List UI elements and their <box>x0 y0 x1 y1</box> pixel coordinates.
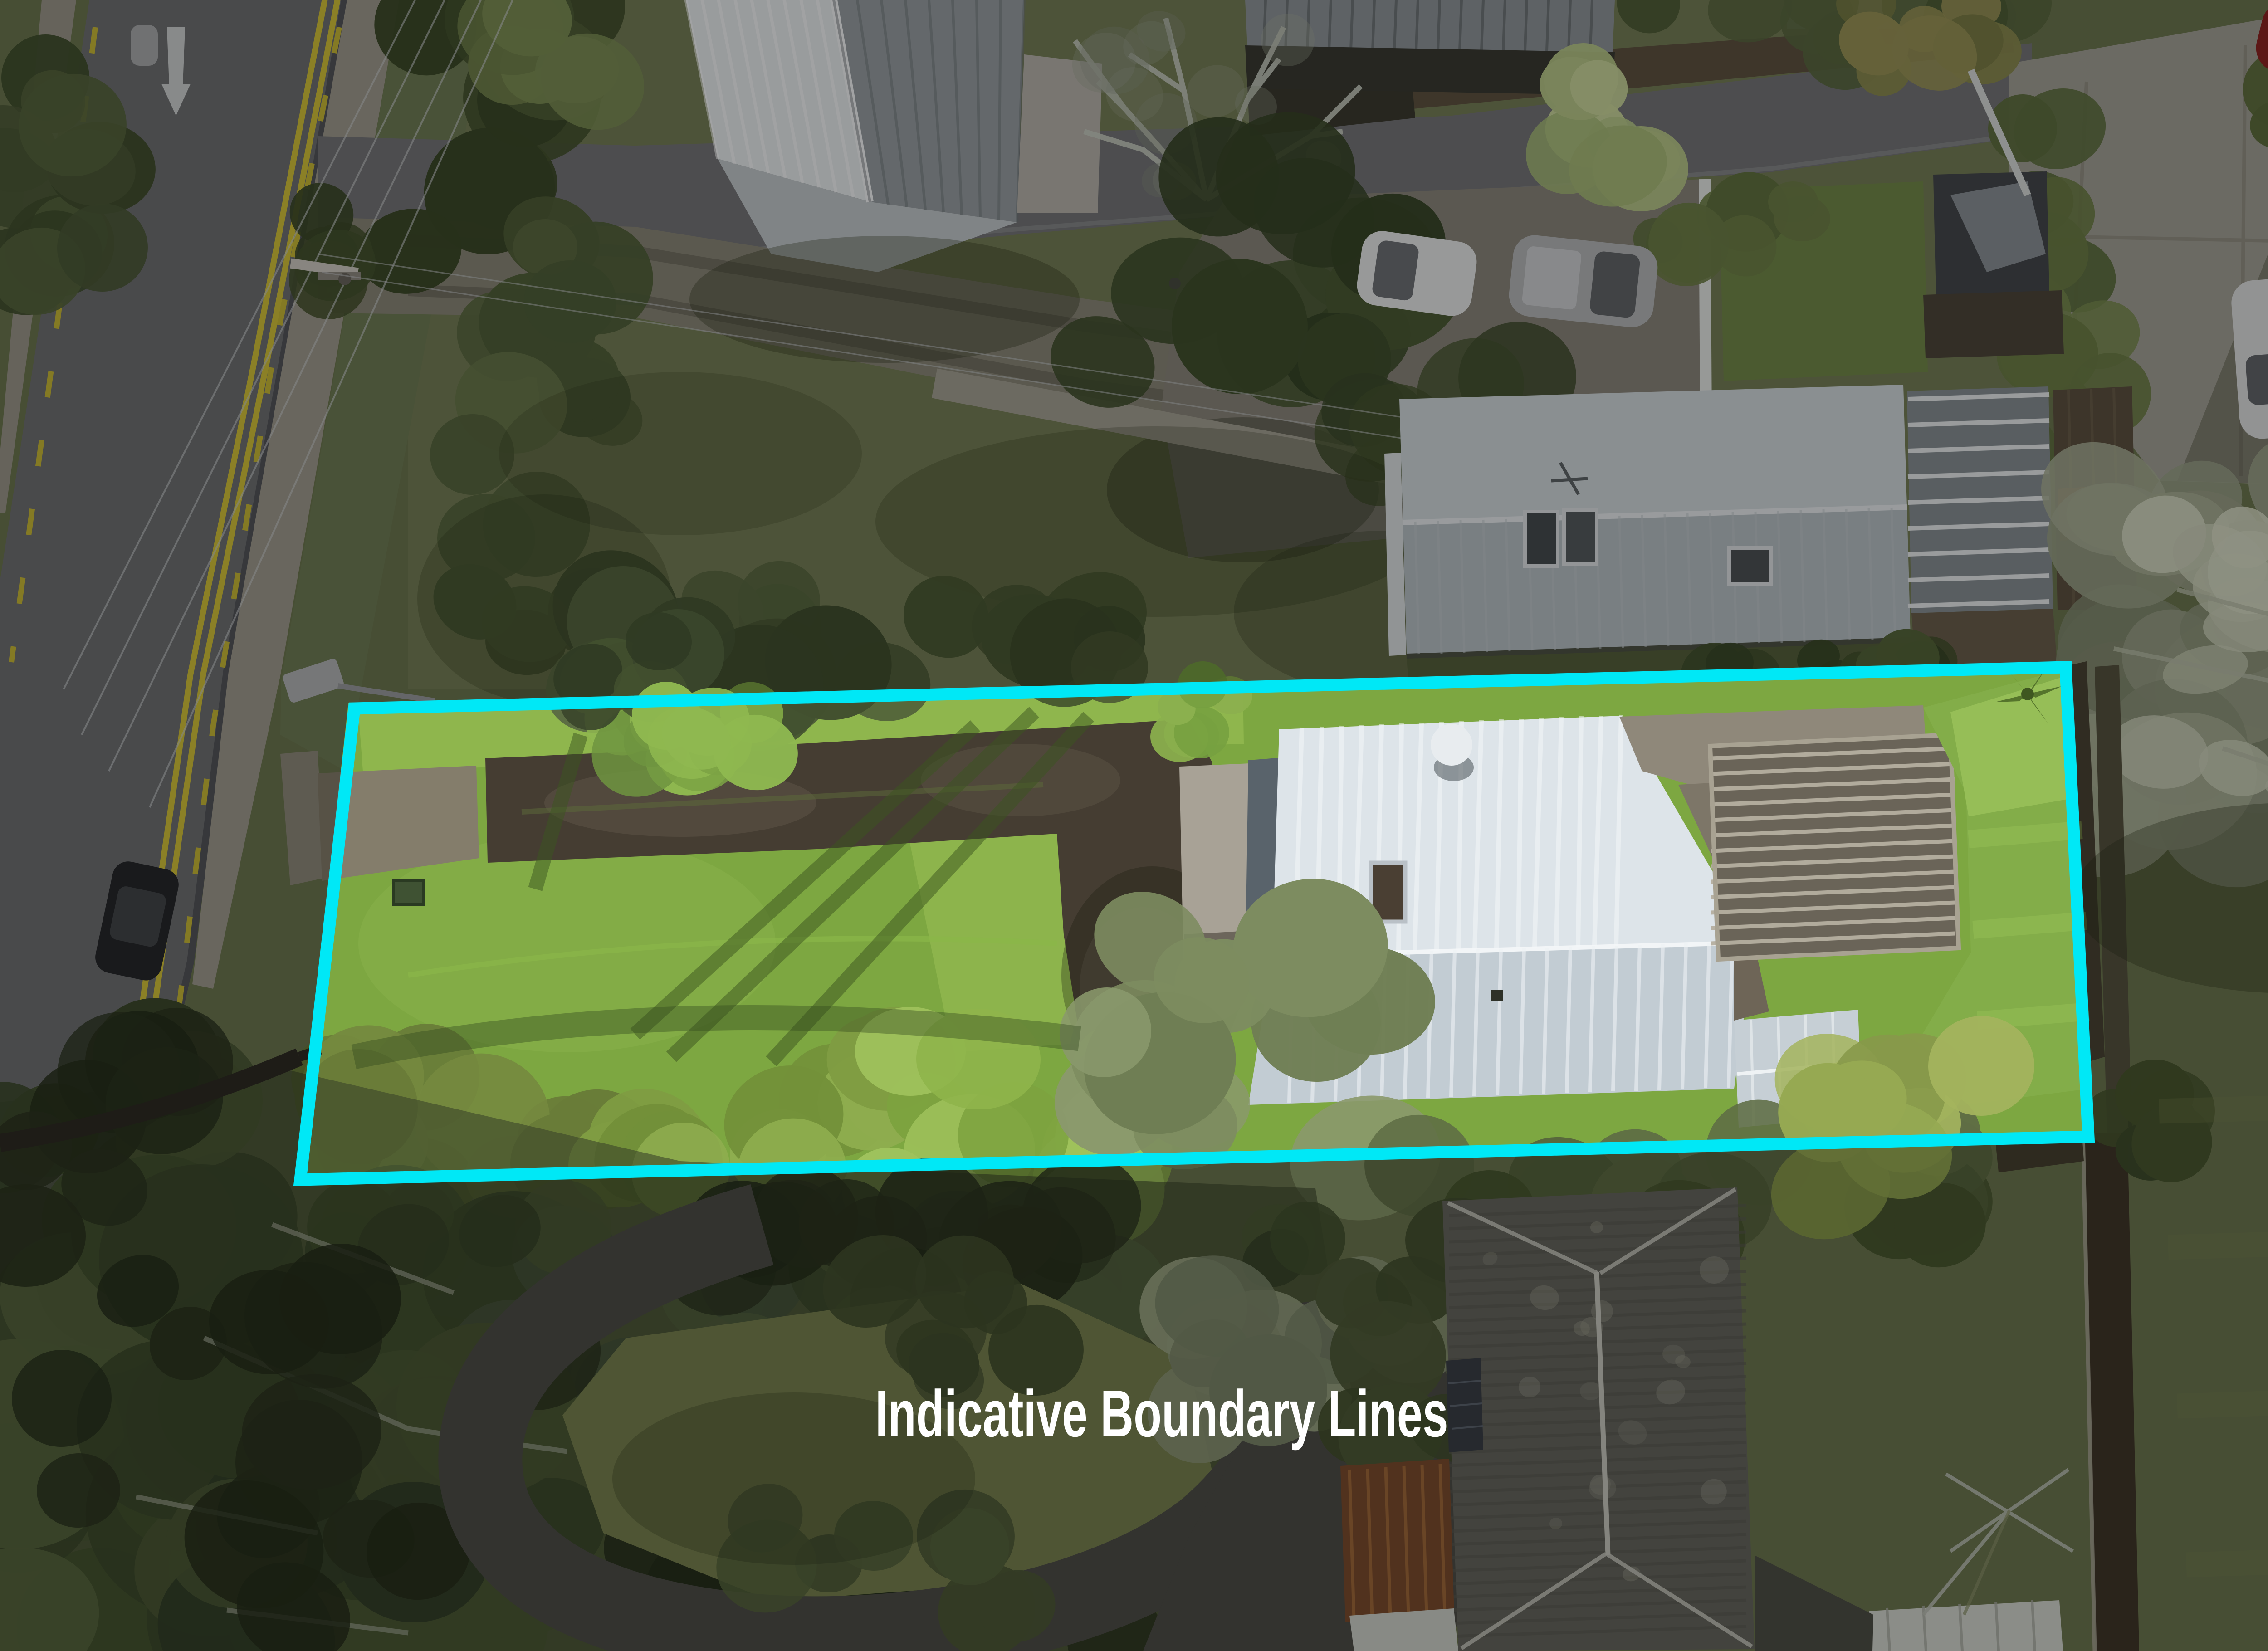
svg-text:Indicative Boundary Lines: Indicative Boundary Lines <box>875 1377 1448 1451</box>
